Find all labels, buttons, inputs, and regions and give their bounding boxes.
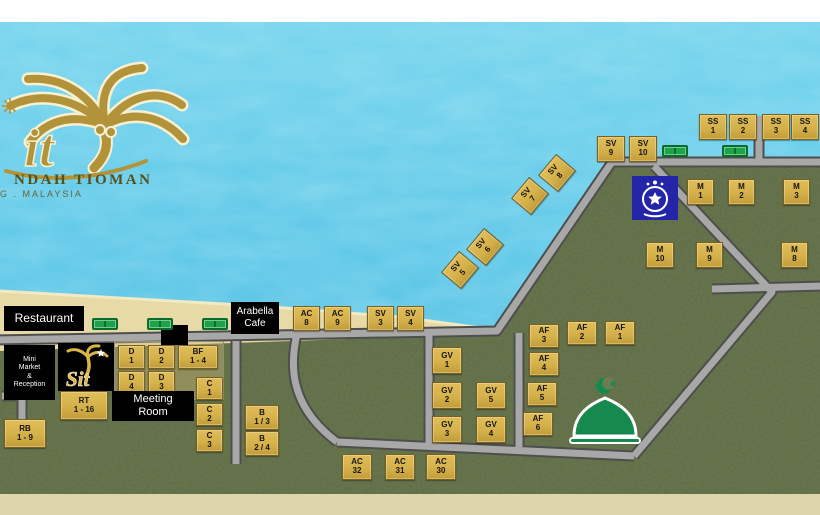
building-connector xyxy=(161,325,188,345)
sparkle-icon xyxy=(97,349,105,357)
bottom-margin-strip xyxy=(0,494,820,515)
logo-letters: it xyxy=(24,118,56,178)
sit-badge-text: Sit xyxy=(66,367,91,391)
dorm-block-panel xyxy=(114,341,224,400)
resort-logo: it NDAH TIOMAN G . MALAYSIA xyxy=(0,44,240,202)
mosque-icon xyxy=(566,374,644,449)
logo-line2: G . MALAYSIA xyxy=(0,189,83,199)
police-logo xyxy=(632,176,678,225)
reception-sit-badge: Sit xyxy=(58,343,114,391)
resort-map: it NDAH TIOMAN G . MALAYSIA Sit xyxy=(0,0,820,515)
top-margin-strip xyxy=(0,0,820,22)
logo-line1: NDAH TIOMAN xyxy=(14,172,152,188)
